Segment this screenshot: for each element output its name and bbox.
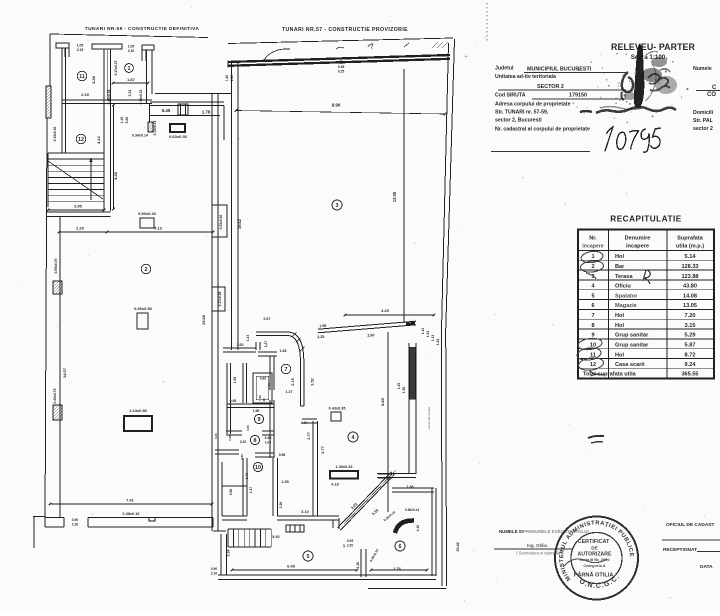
svg-text:Cod SIRUTA: Cod SIRUTA bbox=[495, 93, 526, 99]
svg-text:RELEVEU- PARTER: RELEVEU- PARTER bbox=[611, 42, 695, 52]
svg-text:Hol: Hol bbox=[615, 313, 624, 319]
svg-text:acces din terasa: acces din terasa bbox=[427, 407, 431, 429]
svg-text:Denumire: Denumire bbox=[625, 236, 651, 242]
svg-text:1: 1 bbox=[128, 66, 131, 72]
svg-text:5.92: 5.92 bbox=[272, 535, 279, 539]
svg-text:2.36: 2.36 bbox=[279, 502, 283, 509]
svg-text:128.33: 128.33 bbox=[681, 264, 698, 270]
svg-text:12: 12 bbox=[342, 544, 346, 548]
svg-text:CERTIFICAT: CERTIFICAT bbox=[578, 539, 610, 545]
svg-text:Domicili: Domicili bbox=[693, 110, 714, 116]
svg-text:Suprafata: Suprafata bbox=[677, 236, 704, 242]
svg-text:11: 11 bbox=[79, 74, 85, 80]
svg-text:0.55x0.70: 0.55x0.70 bbox=[54, 258, 58, 273]
svg-text:PÂRNĂ OTILIA: PÂRNĂ OTILIA bbox=[574, 572, 614, 579]
svg-text:1.24x0.80: 1.24x0.80 bbox=[129, 408, 148, 413]
svg-text:0.45x0.75: 0.45x0.75 bbox=[53, 388, 57, 403]
svg-text:1.78: 1.78 bbox=[202, 110, 211, 115]
svg-text:1.43: 1.43 bbox=[245, 473, 249, 480]
svg-text:Ing. Otilia: Ing. Otilia bbox=[527, 543, 548, 548]
svg-text:0.67: 0.67 bbox=[264, 317, 271, 321]
svg-text:1.12: 1.12 bbox=[421, 328, 425, 335]
svg-text:+: + bbox=[465, 54, 468, 60]
svg-text:incapere: incapere bbox=[582, 244, 603, 250]
svg-text:2.76: 2.76 bbox=[393, 567, 400, 571]
svg-text:Numele: Numele bbox=[693, 66, 712, 72]
svg-text:0.90: 0.90 bbox=[72, 518, 79, 522]
svg-text:1.47: 1.47 bbox=[249, 487, 253, 494]
svg-text:0.98: 0.98 bbox=[229, 489, 233, 496]
svg-text:6: 6 bbox=[591, 303, 594, 309]
svg-text:2.00: 2.00 bbox=[262, 398, 266, 404]
svg-text:DE: DE bbox=[591, 546, 597, 551]
svg-text:19.62: 19.62 bbox=[237, 218, 242, 229]
svg-text:8: 8 bbox=[591, 323, 594, 329]
svg-text:0.15x0.30: 0.15x0.30 bbox=[53, 127, 57, 142]
svg-text:1.13: 1.13 bbox=[431, 335, 435, 342]
svg-text:1.87: 1.87 bbox=[127, 77, 136, 82]
svg-text:0.10x0.38: 0.10x0.38 bbox=[107, 90, 111, 105]
svg-text:8.72: 8.72 bbox=[685, 352, 696, 358]
svg-text:7: 7 bbox=[285, 367, 288, 373]
svg-text:0.46: 0.46 bbox=[228, 435, 232, 441]
svg-text:9: 9 bbox=[258, 417, 261, 423]
svg-text:1.69: 1.69 bbox=[233, 377, 237, 384]
svg-text:2.95: 2.95 bbox=[74, 204, 83, 209]
svg-text:5.14: 5.14 bbox=[685, 254, 697, 260]
svg-text:2.10: 2.10 bbox=[128, 49, 135, 53]
svg-text:0.30: 0.30 bbox=[214, 433, 218, 439]
svg-text:1.40: 1.40 bbox=[225, 75, 229, 81]
svg-text:0.43x0.35: 0.43x0.35 bbox=[329, 407, 346, 411]
svg-text:1.43: 1.43 bbox=[426, 331, 430, 338]
svg-text:3.38: 3.38 bbox=[91, 75, 96, 84]
svg-text:incapere: incapere bbox=[626, 244, 649, 250]
svg-text:0.82: 0.82 bbox=[260, 377, 267, 381]
svg-text:2.25: 2.25 bbox=[317, 335, 324, 340]
svg-text:12: 12 bbox=[590, 362, 596, 368]
svg-text:1.30x0.33: 1.30x0.33 bbox=[336, 465, 353, 469]
svg-text:2.30: 2.30 bbox=[72, 523, 79, 527]
svg-text:2.19: 2.19 bbox=[291, 378, 295, 385]
svg-text:10: 10 bbox=[255, 465, 261, 471]
svg-text:0.34x0.14: 0.34x0.14 bbox=[132, 134, 148, 138]
svg-text:0.36x0.50: 0.36x0.50 bbox=[134, 306, 153, 311]
svg-text:3.10: 3.10 bbox=[301, 510, 308, 514]
svg-text:Hol: Hol bbox=[615, 352, 624, 358]
svg-text:2.10: 2.10 bbox=[211, 572, 218, 576]
svg-text:Grup sanitar: Grup sanitar bbox=[615, 333, 649, 339]
svg-text:1.15: 1.15 bbox=[120, 117, 124, 124]
svg-text:1: 1 bbox=[591, 254, 594, 260]
svg-text:365.55: 365.55 bbox=[681, 372, 698, 378]
svg-text:0.38x0.16: 0.38x0.16 bbox=[123, 512, 140, 516]
svg-text:1.20: 1.20 bbox=[356, 562, 360, 569]
svg-text:1.43: 1.43 bbox=[246, 335, 250, 342]
svg-text:Adresa corpului de proprietate: Adresa corpului de proprietate bbox=[495, 102, 571, 108]
svg-text:1.96: 1.96 bbox=[319, 324, 326, 329]
svg-text:13.05: 13.05 bbox=[683, 303, 697, 309]
svg-text:8.90: 8.90 bbox=[332, 103, 341, 108]
svg-text:9.24: 9.24 bbox=[685, 362, 697, 368]
svg-text:Str. TUNARI nr. 57-59,: Str. TUNARI nr. 57-59, bbox=[495, 110, 549, 116]
svg-text:Grup sanitar: Grup sanitar bbox=[615, 343, 649, 349]
svg-text:8.85: 8.85 bbox=[380, 397, 385, 406]
svg-text:2.60: 2.60 bbox=[367, 333, 374, 338]
svg-text:TUNARI NR.59 - CONSTRUCTIE DEF: TUNARI NR.59 - CONSTRUCTIE DEFINITIVA bbox=[85, 26, 200, 32]
svg-text:Casa scarii: Casa scarii bbox=[615, 362, 645, 368]
svg-text:6.48: 6.48 bbox=[287, 564, 296, 569]
svg-text:4.25: 4.25 bbox=[381, 308, 390, 313]
svg-text:CO: CO bbox=[707, 92, 716, 98]
svg-text:1.25: 1.25 bbox=[397, 383, 401, 390]
svg-text:0.80: 0.80 bbox=[240, 454, 244, 460]
svg-text:MUNICIPIUL BUCURESTI: MUNICIPIUL BUCURESTI bbox=[527, 67, 592, 73]
svg-text:3.34: 3.34 bbox=[227, 550, 231, 557]
svg-text:7.20: 7.20 bbox=[685, 313, 696, 319]
svg-text:1.05: 1.05 bbox=[77, 44, 84, 48]
svg-text:Magazie: Magazie bbox=[615, 303, 637, 309]
svg-text:0.63x0.30: 0.63x0.30 bbox=[169, 134, 188, 139]
svg-text:1.27: 1.27 bbox=[264, 341, 268, 348]
svg-text:TUNARI NR.57 - CONSTRUCTIE PRO: TUNARI NR.57 - CONSTRUCTIE PROVIZORIE bbox=[282, 27, 408, 33]
svg-text:2: 2 bbox=[145, 267, 148, 273]
svg-text:123.88: 123.88 bbox=[681, 274, 698, 280]
svg-text:Bar: Bar bbox=[615, 264, 625, 270]
svg-text:0.05: 0.05 bbox=[347, 539, 353, 543]
svg-text:2: 2 bbox=[591, 264, 594, 270]
svg-text:2.77: 2.77 bbox=[321, 446, 325, 453]
svg-text:0.36x0.14: 0.36x0.14 bbox=[405, 508, 419, 512]
svg-text:Str. PAL: Str. PAL bbox=[693, 118, 714, 124]
svg-text:0.38: 0.38 bbox=[338, 65, 345, 69]
svg-text:1.26: 1.26 bbox=[267, 383, 271, 389]
svg-text:8: 8 bbox=[254, 438, 257, 444]
svg-text:5.29: 5.29 bbox=[685, 333, 696, 339]
svg-text:1.60: 1.60 bbox=[237, 343, 244, 347]
svg-text:Terasa: Terasa bbox=[615, 274, 634, 280]
svg-text:7.41: 7.41 bbox=[126, 498, 135, 503]
svg-text:NUMELE SI: NUMELE SI bbox=[499, 529, 523, 534]
svg-text:0.96: 0.96 bbox=[279, 453, 286, 457]
svg-text:2.19: 2.19 bbox=[81, 92, 90, 97]
svg-text:0.98: 0.98 bbox=[230, 399, 237, 403]
svg-text:RECAPITULATIE: RECAPITULATIE bbox=[610, 215, 681, 224]
svg-text:2.20: 2.20 bbox=[230, 75, 234, 81]
svg-text:2.20: 2.20 bbox=[347, 544, 353, 548]
svg-text:1.05: 1.05 bbox=[128, 45, 135, 49]
svg-text:2.00: 2.00 bbox=[125, 117, 129, 124]
svg-text:0.13x0.16: 0.13x0.16 bbox=[153, 121, 157, 136]
svg-text:5.13: 5.13 bbox=[154, 226, 163, 231]
svg-text:0.80: 0.80 bbox=[246, 425, 250, 431]
svg-text:4.12: 4.12 bbox=[96, 135, 101, 144]
svg-text:Unitatea ad-tiv teritoriala: Unitatea ad-tiv teritoriala bbox=[495, 74, 556, 80]
svg-text:14.08: 14.08 bbox=[683, 293, 697, 299]
svg-text:14.07: 14.07 bbox=[62, 367, 67, 378]
svg-text:Nr.: Nr. bbox=[589, 236, 597, 242]
svg-text:1.50: 1.50 bbox=[402, 387, 406, 394]
svg-text:3.15: 3.15 bbox=[685, 323, 696, 329]
svg-text:0.16x0.32: 0.16x0.32 bbox=[139, 90, 143, 105]
svg-text:OFICIUL DE CADAST: OFICIUL DE CADAST bbox=[666, 522, 714, 528]
svg-text:Spalator: Spalator bbox=[615, 293, 638, 299]
svg-text:RECEPTIONAT: RECEPTIONAT bbox=[663, 547, 697, 553]
svg-text:Nr. cadastral al corpului de p: Nr. cadastral al corpului de proprietate bbox=[495, 127, 590, 133]
svg-text:0.25x0.50: 0.25x0.50 bbox=[219, 215, 223, 230]
svg-text:4: 4 bbox=[352, 435, 355, 441]
svg-text:0.50x0.34: 0.50x0.34 bbox=[138, 211, 157, 216]
svg-text:1.27: 1.27 bbox=[286, 390, 293, 394]
svg-text:1.45: 1.45 bbox=[436, 339, 440, 346]
svg-text:1.00: 1.00 bbox=[265, 441, 271, 445]
svg-text:1.83: 1.83 bbox=[280, 349, 287, 353]
svg-text:7: 7 bbox=[591, 313, 594, 319]
svg-text:1.88: 1.88 bbox=[407, 485, 414, 489]
svg-text:6: 6 bbox=[399, 544, 402, 550]
svg-text:5.87: 5.87 bbox=[685, 343, 696, 349]
svg-text:0.17x0.27: 0.17x0.27 bbox=[114, 60, 118, 75]
svg-text:4.10: 4.10 bbox=[416, 525, 420, 532]
svg-text:sector 2, Bucuresti: sector 2, Bucuresti bbox=[495, 118, 542, 124]
svg-text:1.05: 1.05 bbox=[281, 480, 288, 484]
svg-text:12: 12 bbox=[78, 137, 84, 143]
svg-text:19.68: 19.68 bbox=[201, 314, 206, 325]
svg-text:Categoria A: Categoria A bbox=[583, 563, 605, 568]
svg-text:Hol: Hol bbox=[615, 323, 624, 329]
svg-text:0.90: 0.90 bbox=[211, 567, 218, 571]
svg-text:3.31: 3.31 bbox=[128, 90, 132, 97]
svg-text:Hol: Hol bbox=[615, 254, 624, 260]
svg-text:3.80: 3.80 bbox=[265, 436, 272, 440]
svg-text:SECTOR 2: SECTOR 2 bbox=[537, 84, 564, 90]
svg-text:2.77: 2.77 bbox=[307, 432, 311, 439]
svg-text:5: 5 bbox=[591, 293, 594, 299]
svg-text:43.80: 43.80 bbox=[683, 284, 697, 290]
svg-text:3.52: 3.52 bbox=[311, 378, 315, 385]
svg-text:0.40: 0.40 bbox=[301, 421, 308, 425]
svg-text:19.42: 19.42 bbox=[456, 542, 460, 552]
svg-text:4.18: 4.18 bbox=[331, 483, 338, 487]
svg-text:sector 2: sector 2 bbox=[693, 126, 713, 132]
svg-text:2.15: 2.15 bbox=[77, 48, 84, 52]
svg-text:DATA: DATA bbox=[700, 564, 713, 570]
svg-text:Oficiu: Oficiu bbox=[615, 284, 631, 290]
svg-text:2.22: 2.22 bbox=[240, 440, 247, 444]
svg-text:1.96: 1.96 bbox=[253, 409, 260, 413]
svg-text:utila (m.p.): utila (m.p.) bbox=[676, 244, 704, 250]
svg-text:0.17x0.38: 0.17x0.38 bbox=[218, 292, 222, 307]
svg-text:2.29: 2.29 bbox=[76, 226, 85, 231]
svg-text:5: 5 bbox=[307, 554, 310, 560]
svg-text:0.25: 0.25 bbox=[338, 70, 345, 74]
svg-text:Judetul: Judetul bbox=[495, 66, 514, 72]
svg-text:3: 3 bbox=[336, 203, 339, 209]
svg-text:179150: 179150 bbox=[569, 93, 587, 99]
svg-text:12.05: 12.05 bbox=[392, 191, 397, 202]
svg-text:6.45: 6.45 bbox=[162, 108, 171, 113]
